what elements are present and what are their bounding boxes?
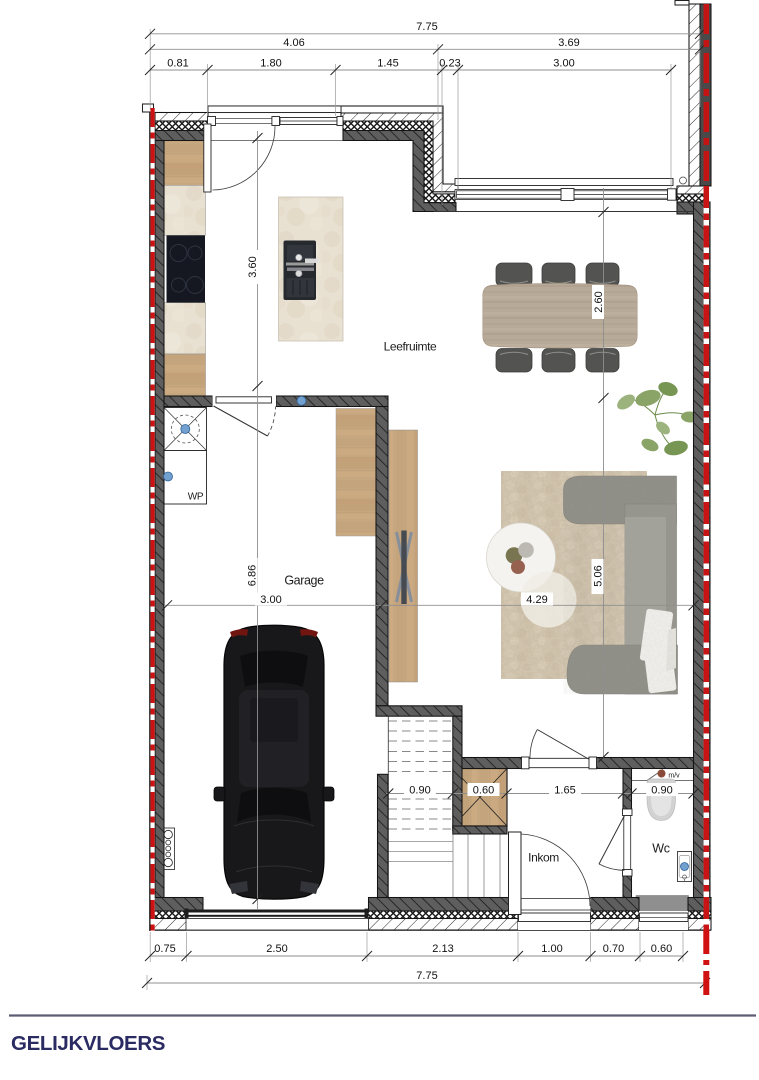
svg-text:7.75: 7.75 (416, 970, 437, 982)
svg-text:4.06: 4.06 (283, 37, 304, 49)
svg-text:0.60: 0.60 (473, 785, 494, 797)
svg-text:Garage: Garage (284, 574, 324, 588)
svg-text:3.00: 3.00 (553, 58, 574, 70)
svg-text:0.75: 0.75 (154, 943, 175, 955)
svg-text:0.60: 0.60 (651, 943, 672, 955)
svg-text:1.00: 1.00 (541, 943, 562, 955)
svg-text:0.23: 0.23 (439, 58, 460, 70)
svg-text:WP: WP (188, 492, 204, 503)
svg-text:Inkom: Inkom (528, 851, 559, 865)
svg-text:1.65: 1.65 (554, 785, 575, 797)
svg-text:1.80: 1.80 (260, 58, 281, 70)
svg-text:0.90: 0.90 (651, 785, 672, 797)
svg-text:6.86: 6.86 (247, 565, 259, 586)
svg-text:Wc: Wc (652, 842, 669, 856)
svg-text:4.29: 4.29 (526, 594, 547, 606)
svg-text:3.69: 3.69 (558, 37, 579, 49)
svg-text:7.75: 7.75 (416, 21, 437, 33)
svg-text:1.45: 1.45 (377, 58, 398, 70)
svg-text:0.70: 0.70 (603, 943, 624, 955)
svg-text:3.60: 3.60 (247, 256, 259, 277)
svg-text:2.60: 2.60 (593, 291, 605, 312)
svg-text:3.00: 3.00 (260, 594, 281, 606)
svg-text:0.81: 0.81 (167, 58, 188, 70)
svg-text:5.06: 5.06 (592, 565, 604, 586)
svg-text:GELIJKVLOERS: GELIJKVLOERS (11, 1032, 165, 1055)
svg-text:0.90: 0.90 (409, 785, 430, 797)
svg-text:m/v: m/v (668, 773, 680, 780)
svg-text:Leefruimte: Leefruimte (384, 340, 437, 354)
svg-text:2.13: 2.13 (432, 943, 453, 955)
svg-text:2.50: 2.50 (266, 943, 287, 955)
